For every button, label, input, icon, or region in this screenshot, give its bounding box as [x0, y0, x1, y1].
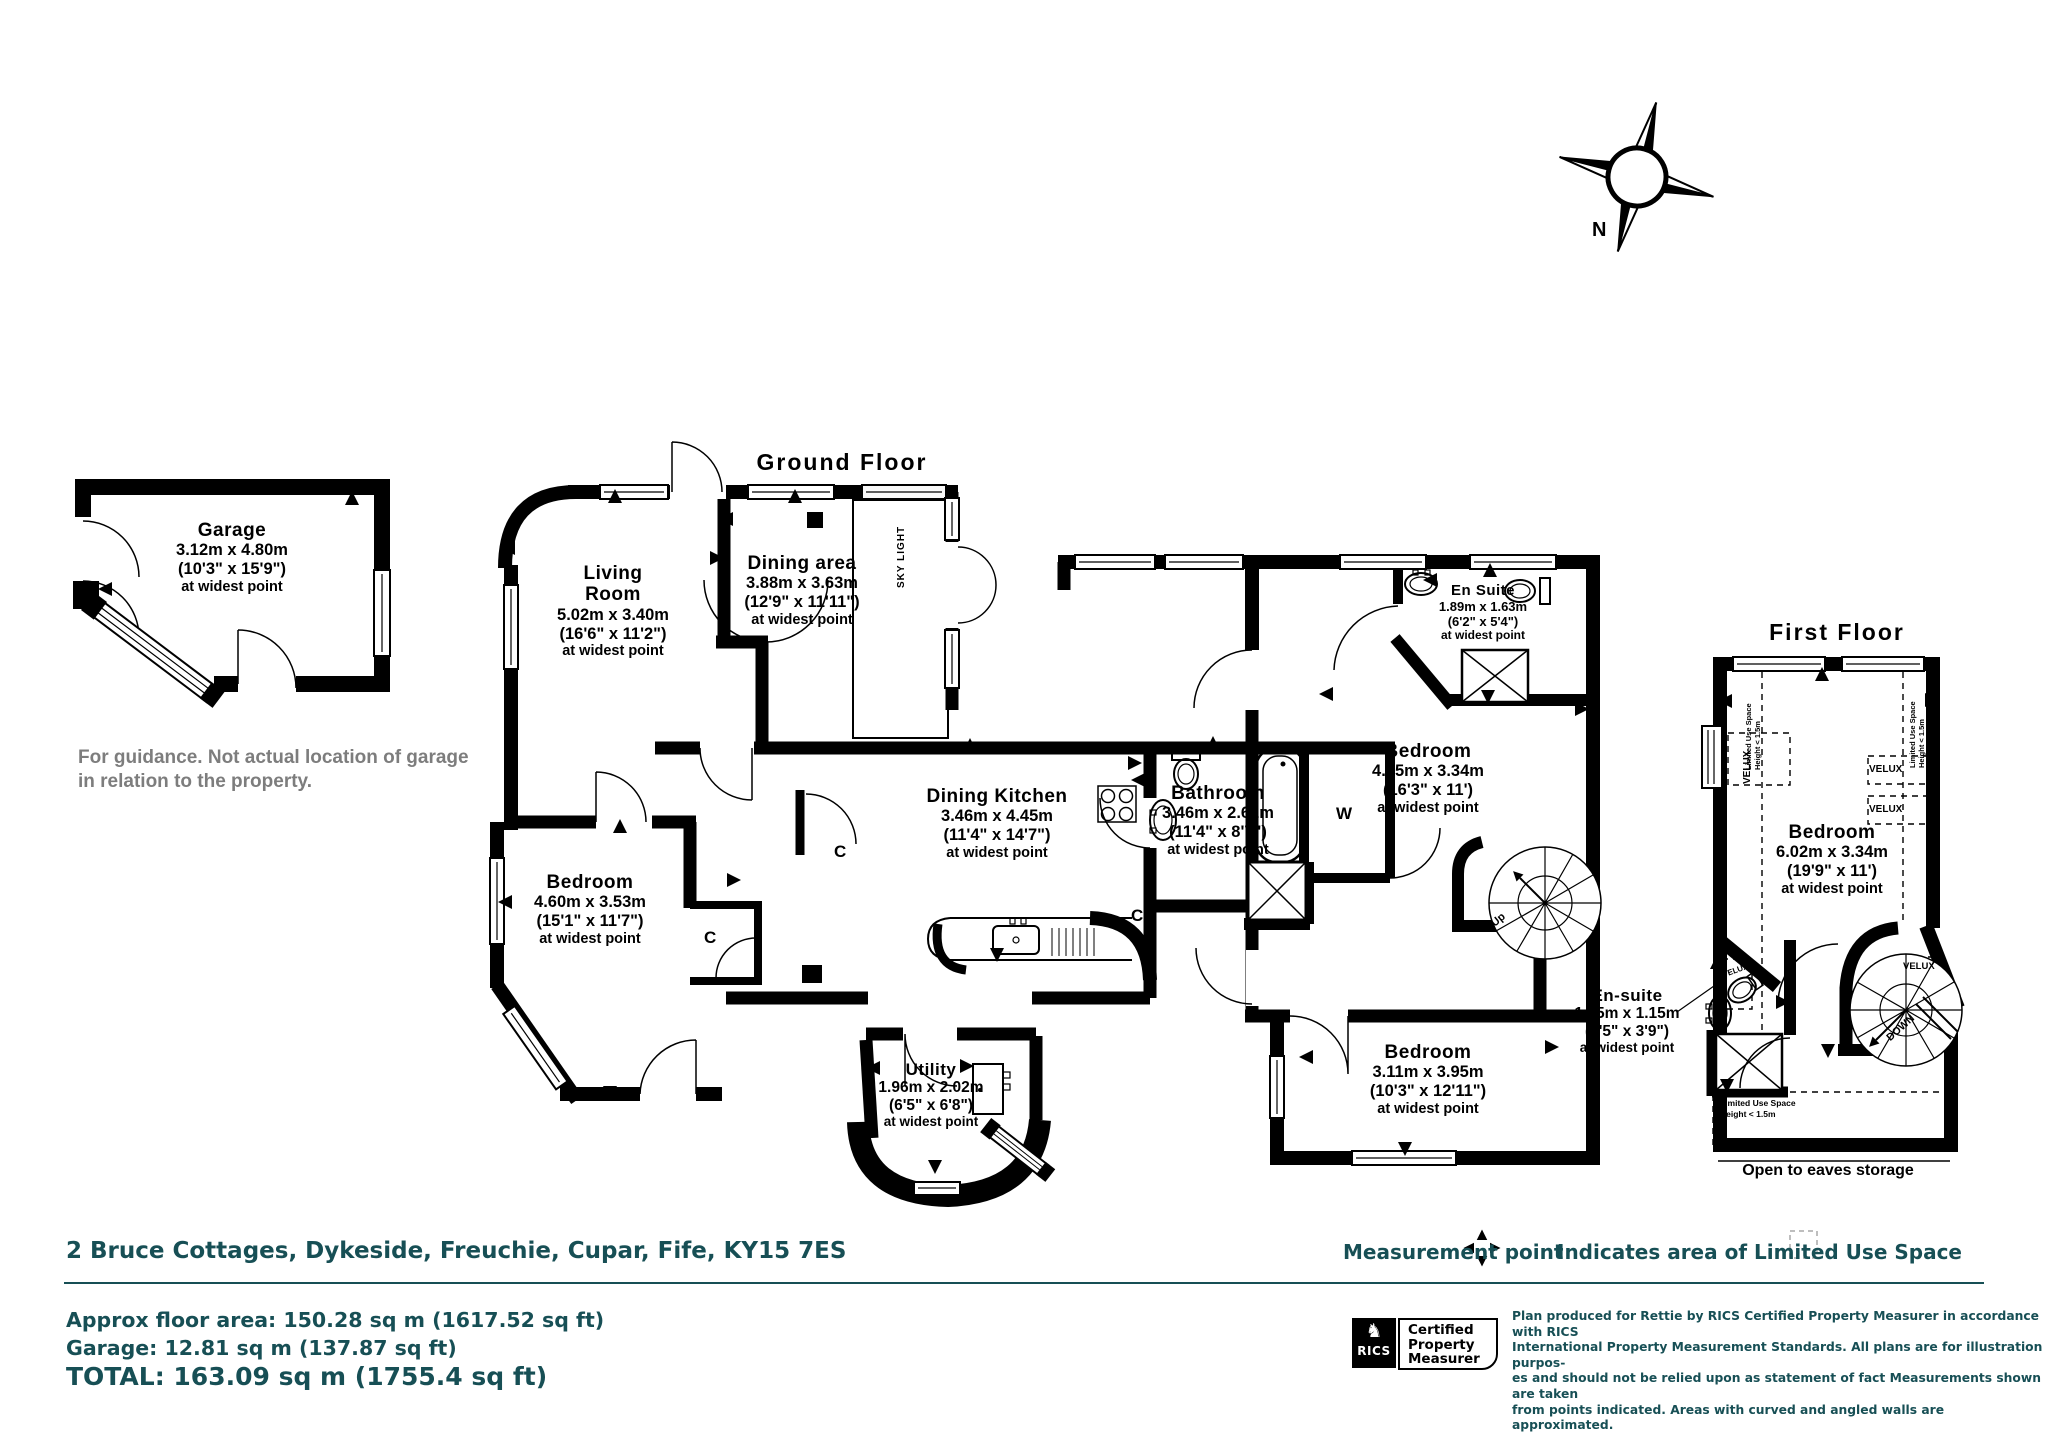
room-label-bathroom: Bathroom 3.46m x 2.62m (11'4" x 8'7") at… [1162, 783, 1274, 858]
divider-line [64, 1282, 1984, 1284]
floorplan-canvas [0, 0, 2048, 1448]
rics-logo: ♞ RICS [1352, 1318, 1396, 1368]
rics-certified-badge: Certified Property Measurer [1398, 1318, 1498, 1370]
first-floor-title: First Floor [1769, 619, 1905, 646]
garage-door-icon [81, 592, 225, 708]
room-label-bedroom-bottom: Bedroom 3.11m x 3.95m (10'3" x 12'11") a… [1370, 1042, 1486, 1117]
cupboard-label-1: C [834, 842, 846, 862]
room-label-dining-area: Dining area 3.88m x 3.63m (12'9" x 11'11… [744, 553, 859, 628]
cupboard-label-3: C [1131, 906, 1143, 926]
room-label-dining-kitchen: Dining Kitchen 3.46m x 4.45m (11'4" x 14… [926, 786, 1067, 861]
velux-label-2: VELUX [1869, 764, 1902, 775]
limited-use-vertical-right: Limited Use SpaceHeight < 1.5m [1908, 701, 1927, 768]
room-label-garage: Garage 3.12m x 4.80m (10'3" x 15'9") at … [176, 520, 288, 595]
measurement-point-legend: Measurement point [1343, 1240, 1563, 1264]
velux-label-4: VELUX [1903, 961, 1935, 972]
legal-disclaimer: Plan produced for Rettie by RICS Certifi… [1512, 1309, 2048, 1434]
garage-guidance-note: For guidance. Not actual location of gar… [78, 746, 469, 795]
compass-north-label: N [1592, 219, 1606, 242]
room-label-en-suite: En Suite 1.89m x 1.63m (6'2" x 5'4") at … [1439, 583, 1527, 643]
floorplan-page: Ground Floor First Floor N Garage 3.12m … [0, 0, 2048, 1448]
limited-use-space-legend: Indicates area of Limited Use Space [1557, 1240, 1962, 1264]
room-label-utility: Utility 1.96m x 2.02m (6'5" x 6'8") at w… [878, 1060, 983, 1129]
garage-area: Garage: 12.81 sq m (137.87 sq ft) [66, 1336, 457, 1360]
room-label-bedroom-right: Bedroom 4.95m x 3.34m (16'3" x 11') at w… [1372, 741, 1484, 816]
cupboard-label-2: C [704, 928, 716, 948]
limited-use-vertical-left: Limited Use SpaceHeight < 1.5m [1744, 703, 1763, 770]
room-label-bedroom-left: Bedroom 4.60m x 3.53m (15'1" x 11'7") at… [534, 872, 646, 947]
compass-rose-icon [1540, 82, 1732, 271]
skylight-label: SKY LIGHT [896, 526, 907, 588]
eaves-storage-label: Open to eaves storage [1742, 1162, 1914, 1180]
room-label-bedroom-first-floor: Bedroom 6.02m x 3.34m (19'9" x 11') at w… [1776, 822, 1888, 897]
spiral-stairs-up-icon [1489, 847, 1601, 959]
room-label-en-suite-first-floor: En-suite 1.95m x 1.15m (6'5" x 3'9") at … [1574, 986, 1679, 1055]
ground-floor-title: Ground Floor [757, 449, 928, 476]
rics-lion-icon: ♞ [1352, 1318, 1396, 1344]
wardrobe-label: W [1336, 804, 1352, 824]
property-address: 2 Bruce Cottages, Dykeside, Freuchie, Cu… [66, 1238, 846, 1264]
velux-label-3: VELUX [1869, 804, 1902, 815]
room-label-living-room: Living Room 5.02m x 3.40m (16'6" x 11'2"… [557, 563, 669, 660]
limited-use-box-label: Limited Use SpaceHeight < 1.5m [1720, 1098, 1796, 1120]
total-area: TOTAL: 163.09 sq m (1755.4 sq ft) [66, 1362, 547, 1391]
approx-floor-area: Approx floor area: 150.28 sq m (1617.52 … [66, 1308, 604, 1332]
